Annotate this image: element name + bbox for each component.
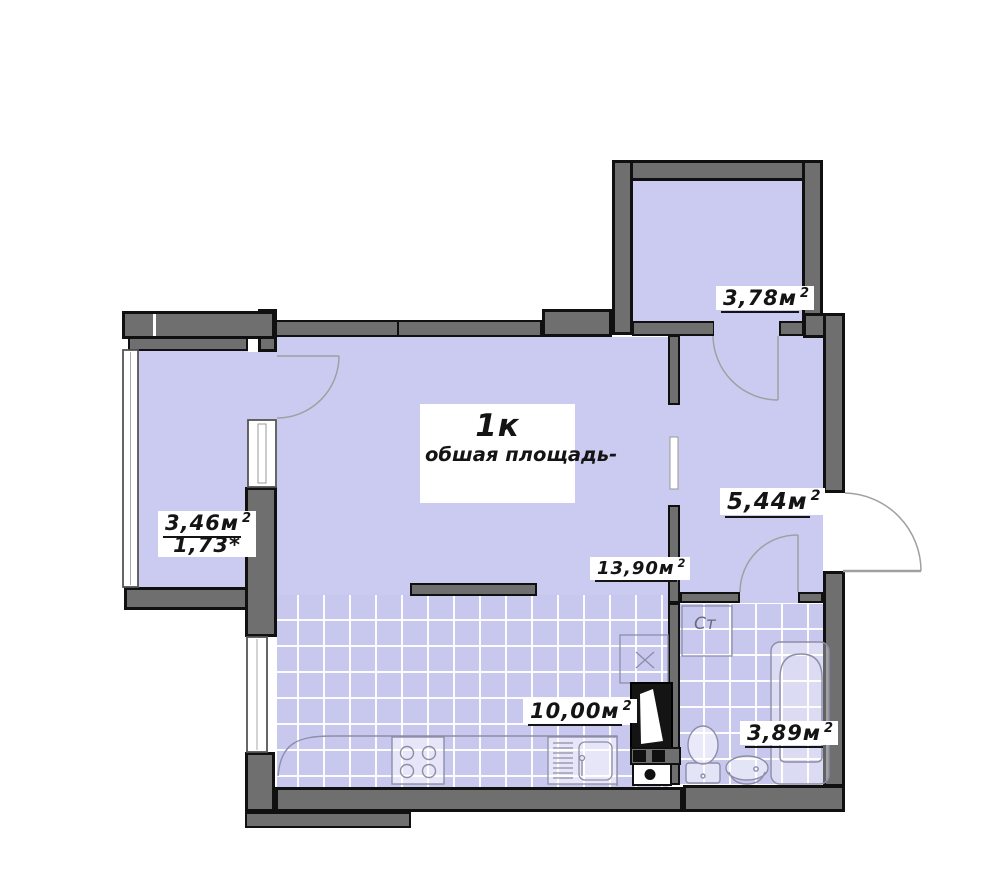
area-value: 13,90м xyxy=(595,558,677,582)
area-label-top-balcony: 3,78м2 xyxy=(716,286,814,310)
area-label-left-balcony: 3,46м2 1,73* xyxy=(158,511,256,557)
door-arc-top-balcony xyxy=(713,336,778,400)
floor-drain-box xyxy=(633,764,671,785)
area-value: 3,78м xyxy=(721,286,799,313)
bathtub xyxy=(771,642,829,784)
washing-machine-label: Ст xyxy=(694,614,716,634)
area-sup: 2 xyxy=(678,557,686,570)
window-kitchen-left xyxy=(247,637,267,752)
door-arc-bathroom xyxy=(740,535,798,592)
area-label-hallway: 5,44м2 xyxy=(720,488,825,515)
door-arc-entry xyxy=(843,493,921,571)
area-value: 10,00м xyxy=(528,699,622,726)
unit-title-label: 1к обшая площадь- xyxy=(420,404,575,503)
area-sup: 2 xyxy=(811,488,821,504)
kitchen-sink xyxy=(548,737,617,784)
area-label-living-room: 13,90м2 xyxy=(590,557,690,580)
washbasin xyxy=(726,756,768,784)
unit-title-line1: 1к xyxy=(425,410,570,443)
window-balcony-living xyxy=(248,420,276,487)
area-label-bathroom: 3,89м2 xyxy=(740,721,838,745)
area-sup: 2 xyxy=(824,721,833,736)
wc-door-threshold xyxy=(631,748,680,764)
area-value: 3,89м xyxy=(745,721,823,748)
area-reduced-value: 1,73* xyxy=(163,534,251,556)
floor-plan-canvas: 1к обшая площадь- 3,78м2 3,46м2 1,73* 5,… xyxy=(0,0,1000,877)
wc-door-black xyxy=(631,683,672,748)
door-arc-balcony xyxy=(277,356,339,418)
area-sup: 2 xyxy=(800,286,809,301)
area-label-kitchen: 10,00м2 xyxy=(523,699,637,723)
stove xyxy=(392,737,444,784)
area-value: 5,44м xyxy=(725,489,810,518)
door-leaf-living-hallway xyxy=(670,437,678,489)
area-sup: 2 xyxy=(623,699,632,714)
vent-shaft xyxy=(620,635,668,683)
toilet xyxy=(686,726,720,783)
window-balcony-glazing xyxy=(123,350,138,587)
area-sup: 2 xyxy=(242,511,251,526)
unit-title-line2: обшая площадь- xyxy=(425,445,570,465)
